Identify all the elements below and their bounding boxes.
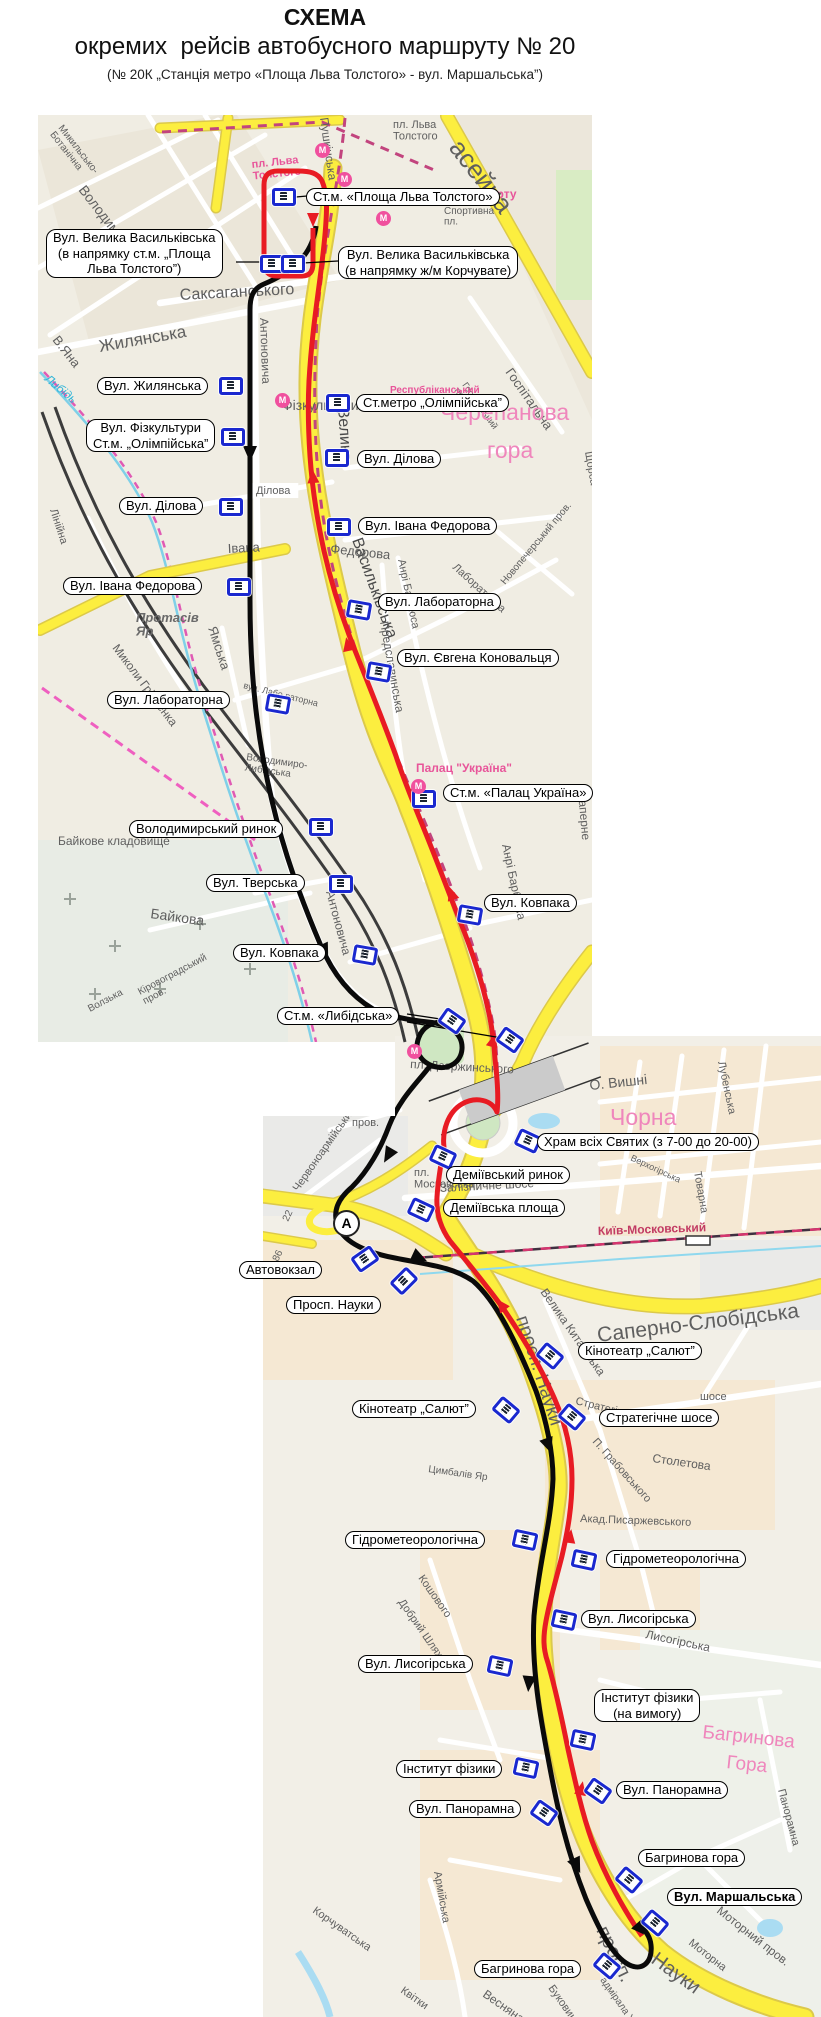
page-title: СХЕМА (0, 4, 650, 31)
stop-label: Вул. Велика Васильківська (в напрямку ст… (46, 229, 223, 278)
stop-label: Вул. Івана Федорова (358, 517, 497, 535)
stop-label: Кінотеатр „Салют” (352, 1400, 476, 1418)
stop-label: Ст.м. «Палац Україна» (443, 784, 593, 802)
stop-label: Автовокзал (239, 1261, 322, 1279)
stop-label: Ст.м. «Либідська» (277, 1007, 399, 1025)
stop-label: Вул. Ділова (357, 450, 441, 468)
stop-label: Деміївська площа (443, 1199, 565, 1217)
stop-label: Вул. Ковпака (233, 944, 326, 962)
stop-label: Вул. Івана Федорова (63, 577, 202, 595)
stop-labels-layer: Ст.м. «Площа Льва Толстого»Вул. Велика В… (0, 0, 821, 2017)
title-block: СХЕМА окремих рейсів автобусного маршрут… (0, 4, 650, 82)
page-subtitle-detail: (№ 20К „Станція метро «Площа Льва Толсто… (0, 67, 650, 82)
stop-label: Вул. Жилянська (97, 377, 208, 395)
stop-label: Вул. Фізкультури Ст.м. „Олімпійська” (86, 419, 215, 452)
stop-label: Вул. Панорамна (409, 1800, 521, 1818)
stop-label: Ст.метро „Олімпійська” (356, 394, 509, 412)
stop-label: Деміївський ринок (446, 1166, 570, 1184)
stop-label: Багринова гора (474, 1960, 581, 1978)
stop-label: Гідрометеорологічна (345, 1531, 485, 1549)
stop-label: Гідрометеорологічна (606, 1550, 746, 1568)
stop-label: Вул. Лабораторна (378, 593, 501, 611)
stop-label: Вул. Лисогірська (581, 1610, 696, 1628)
stop-label: Вул. Лисогірська (358, 1655, 473, 1673)
stop-label: Вул. Велика Васильківська (в напрямку ж/… (338, 246, 518, 279)
stop-label: Стратегічне шосе (599, 1409, 719, 1427)
stop-label: Вул. Ковпака (484, 894, 577, 912)
stop-label: Вул. Євгена Коновальця (397, 649, 559, 667)
stop-label: Вул. Панорамна (616, 1781, 728, 1799)
stop-label: Володимирський ринок (129, 820, 283, 838)
stop-label: Храм всіх Святих (з 7-00 до 20-00) (537, 1133, 759, 1151)
stop-label: Інститут фізики (на вимогу) (594, 1689, 700, 1722)
stop-label: Вул. Маршальська (667, 1888, 802, 1906)
stop-label: Кінотеатр „Салют” (578, 1342, 702, 1360)
stop-label: Інститут фізики (396, 1760, 502, 1778)
stop-label: Просп. Науки (286, 1296, 381, 1314)
stop-label: Багринова гора (638, 1849, 745, 1867)
stop-label: Вул. Тверська (206, 874, 305, 892)
stop-label: Вул. Ділова (119, 497, 203, 515)
page-subtitle: окремих рейсів автобусного маршруту № 20 (0, 33, 650, 61)
stop-label: Вул. Лабораторна (107, 691, 230, 709)
route-scheme-page: СХЕМА окремих рейсів автобусного маршрут… (0, 0, 821, 2017)
stop-label: Ст.м. «Площа Льва Толстого» (306, 188, 500, 206)
